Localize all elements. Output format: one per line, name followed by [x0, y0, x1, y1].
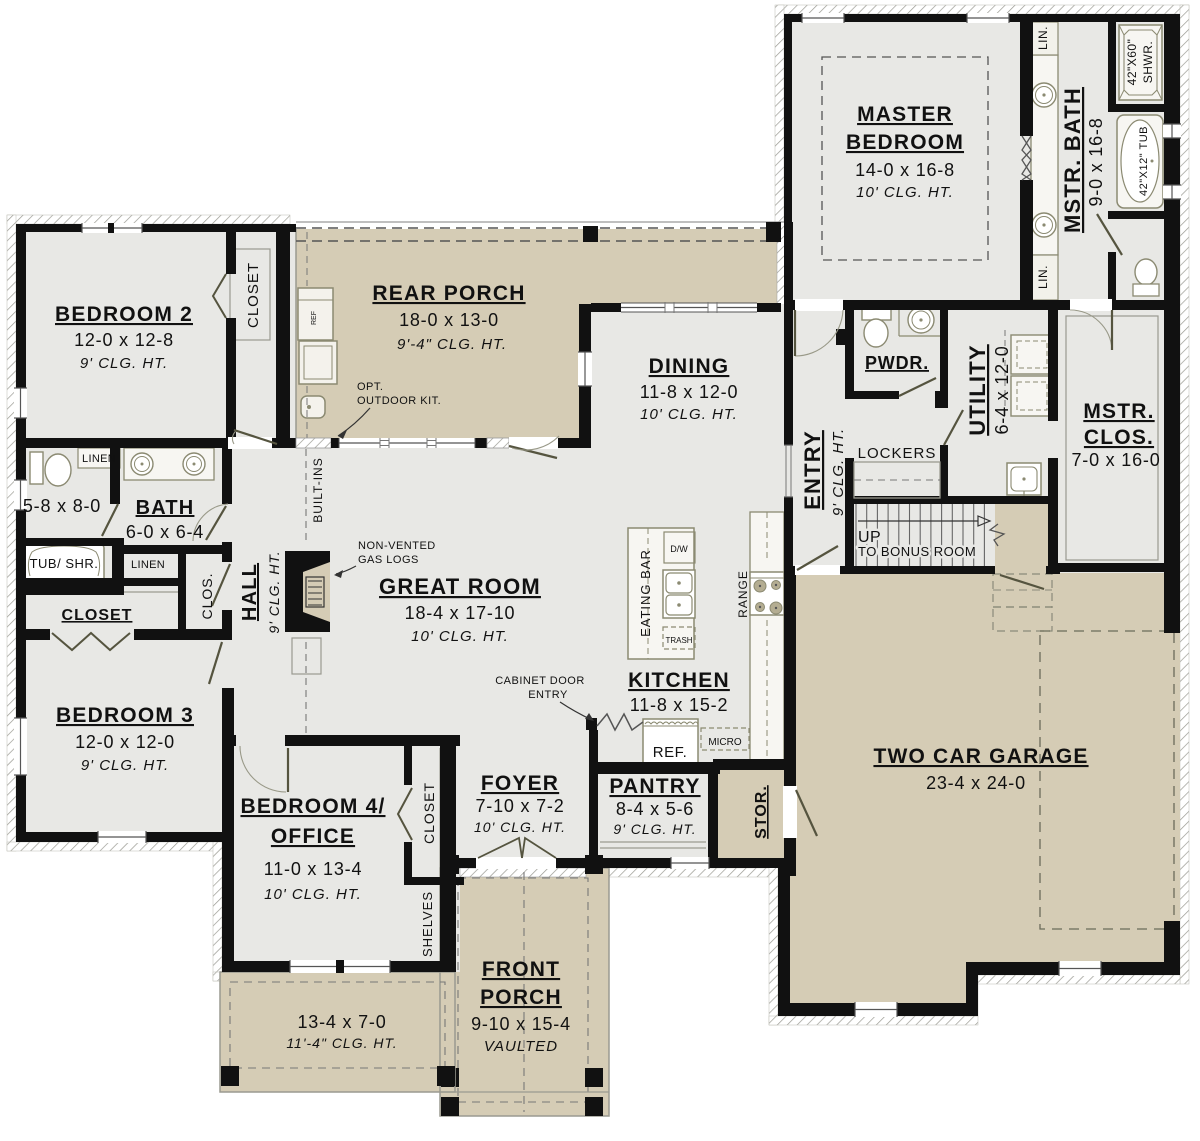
svg-text:NON-VENTED: NON-VENTED — [358, 540, 436, 552]
svg-text:MSTR.: MSTR. — [1083, 400, 1154, 423]
svg-text:LINEN: LINEN — [82, 453, 116, 465]
svg-text:12-0 x 12-8: 12-0 x 12-8 — [74, 330, 174, 350]
svg-text:18-4 x 17-10: 18-4 x 17-10 — [405, 603, 516, 623]
svg-text:LINEN: LINEN — [131, 559, 165, 571]
svg-text:CLOSET: CLOSET — [421, 782, 437, 844]
svg-text:23-4 x 24-0: 23-4 x 24-0 — [926, 773, 1026, 793]
svg-text:BEDROOM 4/: BEDROOM 4/ — [240, 795, 385, 818]
svg-text:9' CLG. HT.: 9' CLG. HT. — [830, 428, 847, 516]
svg-text:MICRO: MICRO — [708, 737, 742, 748]
svg-text:BATH: BATH — [136, 497, 195, 519]
svg-text:9-10 x 15-4: 9-10 x 15-4 — [471, 1014, 571, 1034]
svg-text:CLOS.: CLOS. — [199, 572, 215, 619]
svg-text:CLOS.: CLOS. — [1084, 426, 1154, 449]
svg-text:VAULTED: VAULTED — [484, 1038, 558, 1055]
svg-text:10' CLG. HT.: 10' CLG. HT. — [264, 886, 362, 903]
svg-text:UTILITY: UTILITY — [965, 344, 990, 436]
svg-text:LOCKERS: LOCKERS — [858, 445, 937, 462]
svg-text:FOYER: FOYER — [481, 772, 559, 795]
svg-text:CLOSET: CLOSET — [245, 262, 262, 328]
svg-text:6-4 x 12-0: 6-4 x 12-0 — [992, 345, 1012, 434]
svg-text:11-8 x 12-0: 11-8 x 12-0 — [640, 382, 739, 402]
svg-text:10' CLG. HT.: 10' CLG. HT. — [474, 819, 566, 835]
svg-text:9' CLG. HT.: 9' CLG. HT. — [266, 550, 282, 633]
svg-text:GAS LOGS: GAS LOGS — [358, 554, 419, 566]
svg-text:CABINET DOOR: CABINET DOOR — [495, 675, 585, 687]
svg-text:14-0 x 16-8: 14-0 x 16-8 — [855, 160, 955, 180]
svg-text:10' CLG. HT.: 10' CLG. HT. — [411, 628, 509, 645]
svg-text:12-0 x 12-0: 12-0 x 12-0 — [75, 732, 175, 752]
svg-text:18-0 x 13-0: 18-0 x 13-0 — [399, 310, 499, 330]
svg-text:10' CLG. HT.: 10' CLG. HT. — [640, 406, 738, 423]
svg-text:11-8 x 15-2: 11-8 x 15-2 — [630, 695, 729, 715]
svg-text:6-0 x 6-4: 6-0 x 6-4 — [126, 522, 204, 542]
svg-text:OFFICE: OFFICE — [271, 825, 355, 848]
svg-text:PORCH: PORCH — [480, 986, 562, 1009]
svg-text:MSTR. BATH: MSTR. BATH — [1060, 87, 1085, 233]
svg-text:REF: REF — [311, 311, 318, 325]
svg-text:9' CLG. HT.: 9' CLG. HT. — [81, 757, 169, 774]
svg-text:11-0 x 13-4: 11-0 x 13-4 — [264, 859, 363, 879]
svg-text:8-4 x 5-6: 8-4 x 5-6 — [616, 799, 694, 819]
svg-text:ENTRY: ENTRY — [800, 430, 825, 510]
svg-text:LIN.: LIN. — [1036, 26, 1050, 50]
svg-text:PANTRY: PANTRY — [609, 775, 700, 798]
svg-text:BEDROOM 3: BEDROOM 3 — [56, 704, 194, 727]
svg-text:SHWR.: SHWR. — [1141, 41, 1155, 84]
svg-text:9' CLG. HT.: 9' CLG. HT. — [613, 821, 696, 837]
svg-text:ENTRY: ENTRY — [528, 689, 568, 701]
svg-text:5-8 x 8-0: 5-8 x 8-0 — [23, 496, 101, 516]
svg-text:FRONT: FRONT — [482, 958, 560, 981]
svg-text:KITCHEN: KITCHEN — [628, 669, 730, 692]
svg-text:DINING: DINING — [649, 355, 730, 378]
svg-text:BEDROOM 2: BEDROOM 2 — [55, 303, 193, 326]
svg-text:9' CLG. HT.: 9' CLG. HT. — [80, 355, 168, 372]
svg-text:OPT.: OPT. — [357, 381, 383, 393]
svg-text:MASTER: MASTER — [857, 103, 953, 126]
svg-text:42"X12" TUB: 42"X12" TUB — [1138, 126, 1150, 196]
svg-text:REAR PORCH: REAR PORCH — [372, 282, 525, 305]
svg-text:EATING BAR: EATING BAR — [638, 549, 653, 637]
svg-text:D/W: D/W — [670, 544, 688, 554]
svg-text:BUILT-INS: BUILT-INS — [311, 457, 325, 522]
svg-text:9-0 x 16-8: 9-0 x 16-8 — [1086, 117, 1106, 206]
svg-text:RANGE: RANGE — [736, 570, 750, 618]
svg-text:GREAT ROOM: GREAT ROOM — [379, 574, 541, 599]
svg-text:SHELVES: SHELVES — [420, 891, 435, 957]
svg-text:TWO CAR GARAGE: TWO CAR GARAGE — [873, 745, 1088, 768]
svg-text:9'-4" CLG. HT.: 9'-4" CLG. HT. — [397, 336, 507, 353]
svg-text:CLOSET: CLOSET — [62, 607, 133, 624]
svg-text:TUB/ SHR.: TUB/ SHR. — [30, 556, 99, 571]
svg-text:LIN.: LIN. — [1036, 265, 1050, 289]
svg-text:BEDROOM: BEDROOM — [846, 131, 964, 154]
svg-text:11'-4" CLG. HT.: 11'-4" CLG. HT. — [286, 1035, 397, 1051]
svg-text:13-4 x 7-0: 13-4 x 7-0 — [297, 1012, 386, 1032]
svg-text:OUTDOOR KIT.: OUTDOOR KIT. — [357, 395, 441, 407]
svg-text:7-0 x 16-0: 7-0 x 16-0 — [1071, 450, 1160, 470]
svg-text:TO BONUS ROOM: TO BONUS ROOM — [858, 544, 976, 559]
svg-text:42"X60": 42"X60" — [1125, 39, 1139, 86]
svg-text:10' CLG. HT.: 10' CLG. HT. — [856, 184, 954, 201]
svg-text:REF.: REF. — [653, 744, 688, 761]
svg-text:STOR.: STOR. — [753, 785, 770, 839]
svg-text:7-10 x 7-2: 7-10 x 7-2 — [475, 796, 564, 816]
svg-text:HALL: HALL — [239, 563, 261, 621]
svg-text:PWDR.: PWDR. — [865, 353, 929, 373]
svg-text:TRASH: TRASH — [665, 636, 692, 645]
